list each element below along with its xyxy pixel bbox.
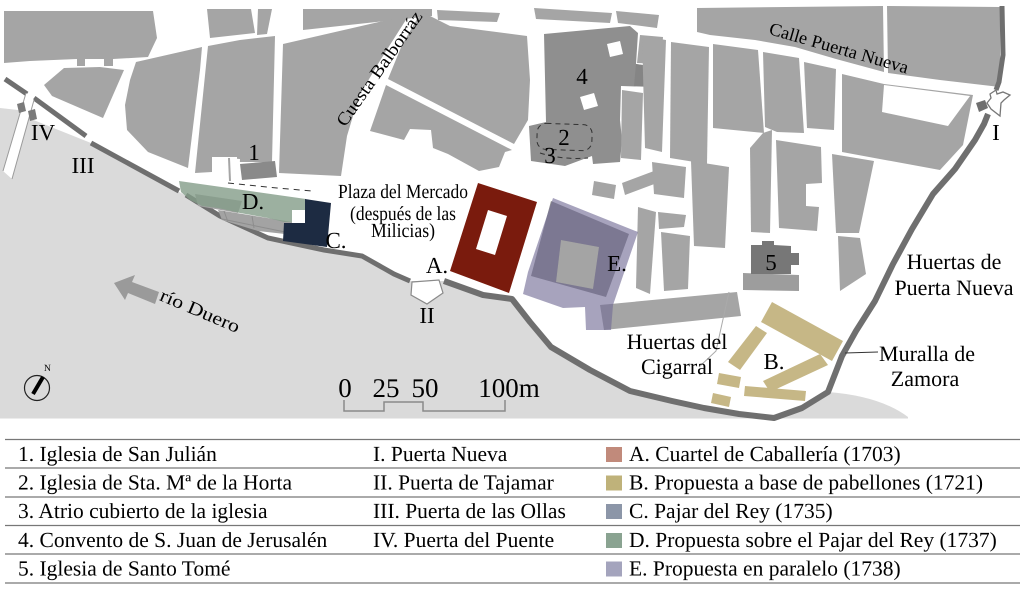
svg-text:Huertas de: Huertas de xyxy=(907,249,1002,274)
svg-text:Puerta Nueva: Puerta Nueva xyxy=(894,275,1013,300)
svg-text:1: 1 xyxy=(248,140,260,165)
svg-text:3. Atrio cubierto de la iglesi: 3. Atrio cubierto de la iglesia xyxy=(18,499,268,523)
svg-text:A.: A. xyxy=(426,253,448,278)
svg-text:5. Iglesia de Santo Tomé: 5. Iglesia de Santo Tomé xyxy=(18,557,230,581)
svg-text:Zamora: Zamora xyxy=(891,366,960,391)
svg-text:5: 5 xyxy=(765,250,777,275)
svg-text:50: 50 xyxy=(412,373,439,403)
svg-text:4. Convento de S. Juan de Jeru: 4. Convento de S. Juan de Jerusalén xyxy=(18,528,328,552)
svg-text:E.: E. xyxy=(607,251,627,276)
svg-text:B.: B. xyxy=(763,349,784,374)
svg-text:D. Propuesta sobre el Pajar de: D. Propuesta sobre el Pajar del Rey (173… xyxy=(629,528,997,552)
svg-text:2. Iglesia de Sta. Mª de la Ho: 2. Iglesia de Sta. Mª de la Horta xyxy=(18,471,292,495)
svg-text:D.: D. xyxy=(242,189,264,214)
svg-text:III. Puerta de las Ollas: III. Puerta de las Ollas xyxy=(373,499,566,523)
svg-text:C. Pajar del Rey (1735): C. Pajar del Rey (1735) xyxy=(629,499,833,523)
svg-text:I. Puerta Nueva: I. Puerta Nueva xyxy=(373,442,508,466)
svg-text:100m: 100m xyxy=(478,373,540,403)
svg-text:I: I xyxy=(992,120,1000,145)
svg-text:25: 25 xyxy=(373,373,400,403)
svg-text:1. Iglesia de San Julián: 1. Iglesia de San Julián xyxy=(18,442,217,466)
svg-text:Milicias): Milicias) xyxy=(371,220,435,242)
svg-text:4: 4 xyxy=(576,64,588,89)
svg-text:C.: C. xyxy=(325,228,346,253)
svg-text:2: 2 xyxy=(558,125,570,150)
svg-text:Huertas del: Huertas del xyxy=(627,329,728,354)
svg-text:B. Propuesta a base de pabello: B. Propuesta a base de pabellones (1721) xyxy=(629,471,983,495)
svg-text:E. Propuesta en paralelo (1738: E. Propuesta en paralelo (1738) xyxy=(629,557,901,581)
svg-text:Plaza del Mercado: Plaza del Mercado xyxy=(338,181,468,203)
svg-text:Muralla de: Muralla de xyxy=(879,341,975,366)
svg-text:N: N xyxy=(44,364,51,374)
svg-text:II. Puerta de Tajamar: II. Puerta de Tajamar xyxy=(373,471,554,495)
svg-text:II: II xyxy=(419,303,434,328)
svg-text:3: 3 xyxy=(544,143,556,168)
svg-text:A. Cuartel de Caballería (1703: A. Cuartel de Caballería (1703) xyxy=(629,442,901,466)
svg-text:0: 0 xyxy=(338,373,352,403)
svg-text:IV. Puerta del Puente: IV. Puerta del Puente xyxy=(373,528,554,552)
svg-text:IV: IV xyxy=(31,120,56,145)
svg-text:Cigarral: Cigarral xyxy=(641,354,713,379)
svg-text:III: III xyxy=(72,153,95,178)
